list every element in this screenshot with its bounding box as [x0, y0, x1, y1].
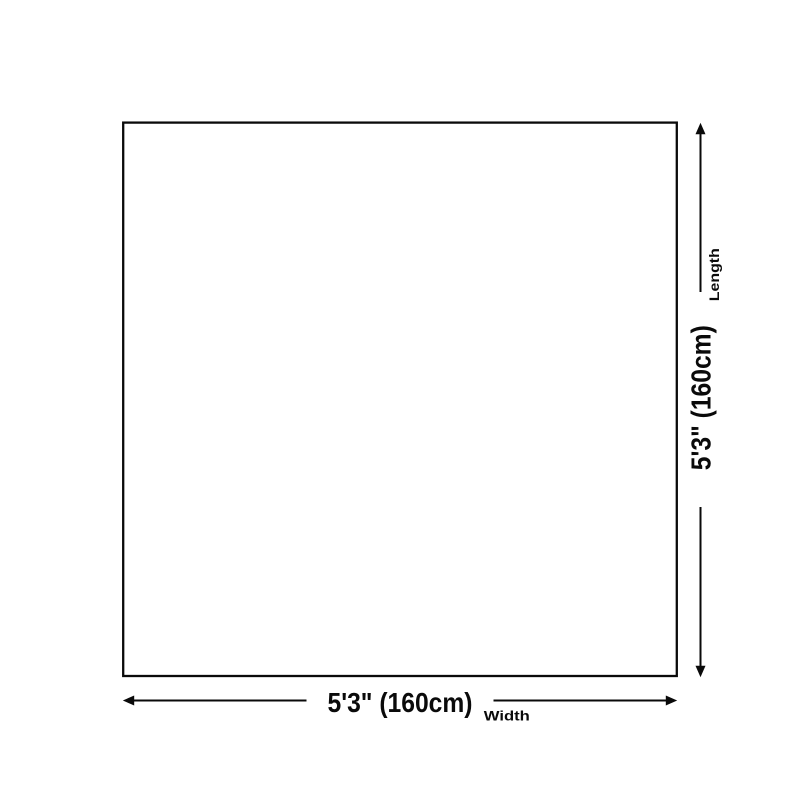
svg-text:Length: Length: [706, 248, 722, 301]
svg-text:Width: Width: [484, 708, 530, 724]
svg-text:5'3" (160cm): 5'3" (160cm): [328, 687, 473, 718]
svg-text:5'3" (160cm): 5'3" (160cm): [686, 325, 717, 470]
